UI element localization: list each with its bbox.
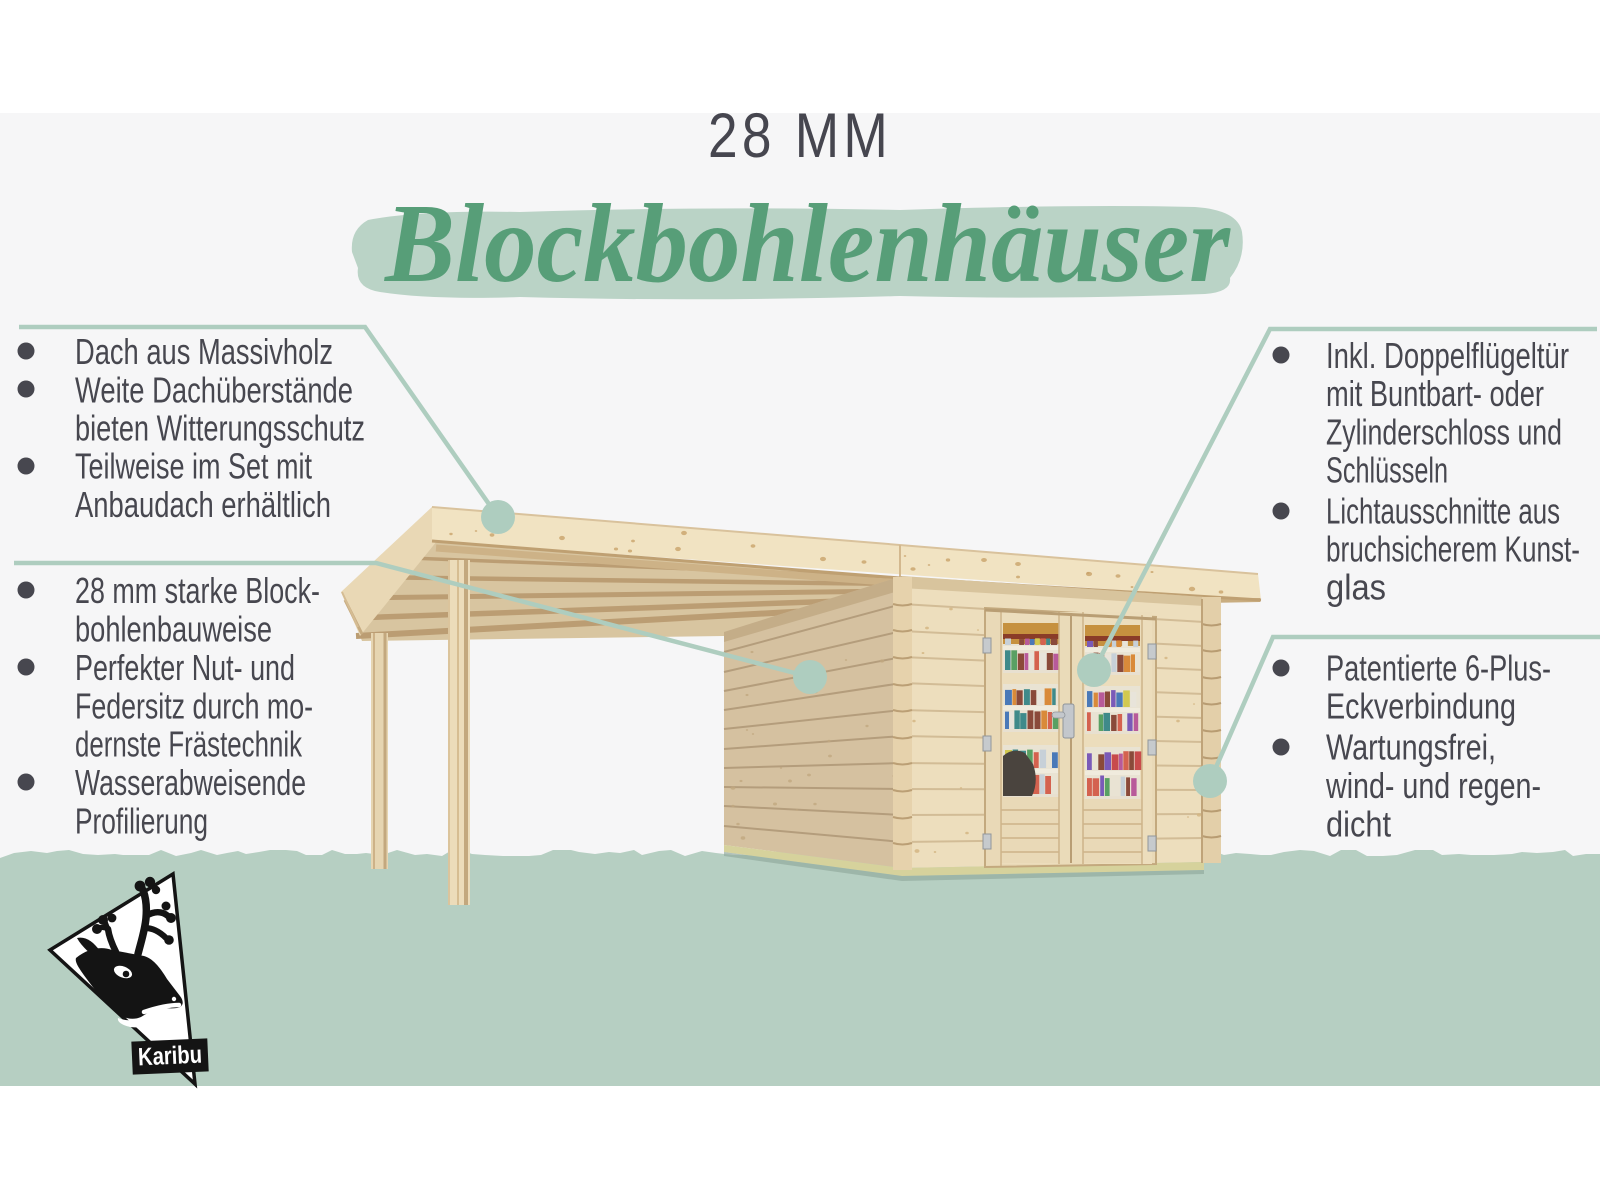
svg-text:dernste Frästechnik: dernste Frästechnik [75,724,303,765]
svg-text:Weite Dachüberstände: Weite Dachüberstände [75,370,353,411]
svg-text:glas: glas [1326,567,1386,608]
svg-text:dicht: dicht [1326,804,1391,845]
svg-text:Teilweise im Set mit: Teilweise im Set mit [75,446,312,487]
svg-text:Federsitz durch mo-: Federsitz durch mo- [75,686,313,727]
svg-text:28 mm starke Block-: 28 mm starke Block- [75,570,320,611]
svg-text:Profilierung: Profilierung [75,801,208,842]
svg-text:bruchsicherem Kunst-: bruchsicherem Kunst- [1326,529,1580,570]
svg-text:bohlenbauweise: bohlenbauweise [75,609,272,650]
svg-text:bieten Witterungsschutz: bieten Witterungsschutz [75,408,365,449]
svg-text:Lichtausschnitte aus: Lichtausschnitte aus [1326,491,1560,532]
svg-text:Schlüsseln: Schlüsseln [1326,450,1448,491]
svg-text:mit Buntbart- oder: mit Buntbart- oder [1326,373,1544,414]
svg-text:Perfekter Nut- und: Perfekter Nut- und [75,647,295,688]
svg-text:Eckverbindung: Eckverbindung [1326,686,1516,727]
svg-text:28 MM: 28 MM [708,101,892,171]
svg-text:Anbaudach erhältlich: Anbaudach erhältlich [75,484,331,525]
svg-text:Wasserabweisende: Wasserabweisende [75,762,306,803]
svg-text:Wartungsfrei,: Wartungsfrei, [1326,727,1496,768]
svg-text:Blockbohlenhäuser: Blockbohlenhäuser [383,182,1231,306]
svg-text:Inkl. Doppelflügeltür: Inkl. Doppelflügeltür [1326,335,1569,376]
svg-text:Zylinderschloss und: Zylinderschloss und [1326,412,1562,453]
svg-text:Karibu: Karibu [137,1041,202,1072]
svg-text:Patentierte 6-Plus-: Patentierte 6-Plus- [1326,648,1551,689]
svg-text:wind- und regen-: wind- und regen- [1325,765,1541,806]
svg-text:Dach aus Massivholz: Dach aus Massivholz [75,331,333,372]
